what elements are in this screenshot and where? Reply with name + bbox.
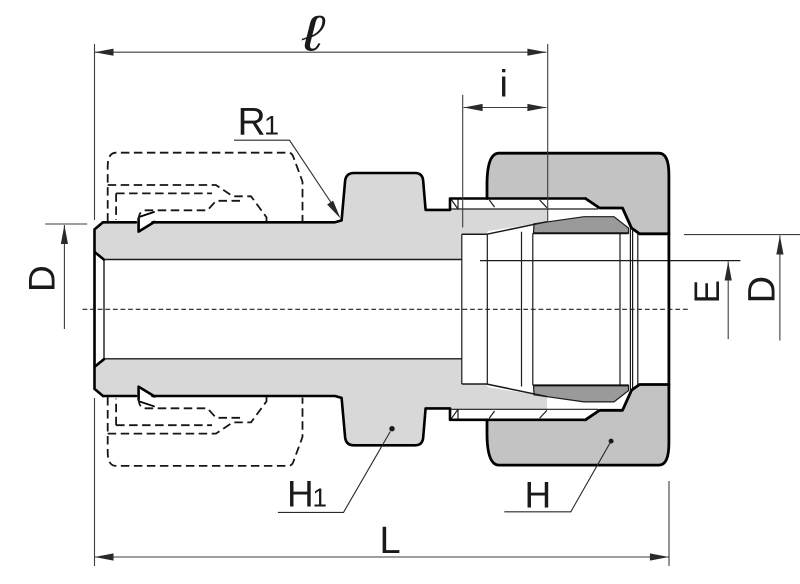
svg-text:D: D bbox=[741, 276, 783, 303]
svg-text:D: D bbox=[21, 265, 62, 292]
svg-text:1: 1 bbox=[264, 111, 279, 141]
svg-text:ℓ: ℓ bbox=[301, 7, 326, 62]
svg-text:i: i bbox=[500, 64, 508, 106]
svg-text:E: E bbox=[688, 280, 727, 303]
svg-text:1: 1 bbox=[313, 483, 327, 513]
svg-text:H: H bbox=[525, 475, 552, 516]
svg-text:L: L bbox=[380, 520, 401, 562]
svg-text:R: R bbox=[238, 101, 266, 144]
svg-text:H: H bbox=[287, 474, 314, 515]
